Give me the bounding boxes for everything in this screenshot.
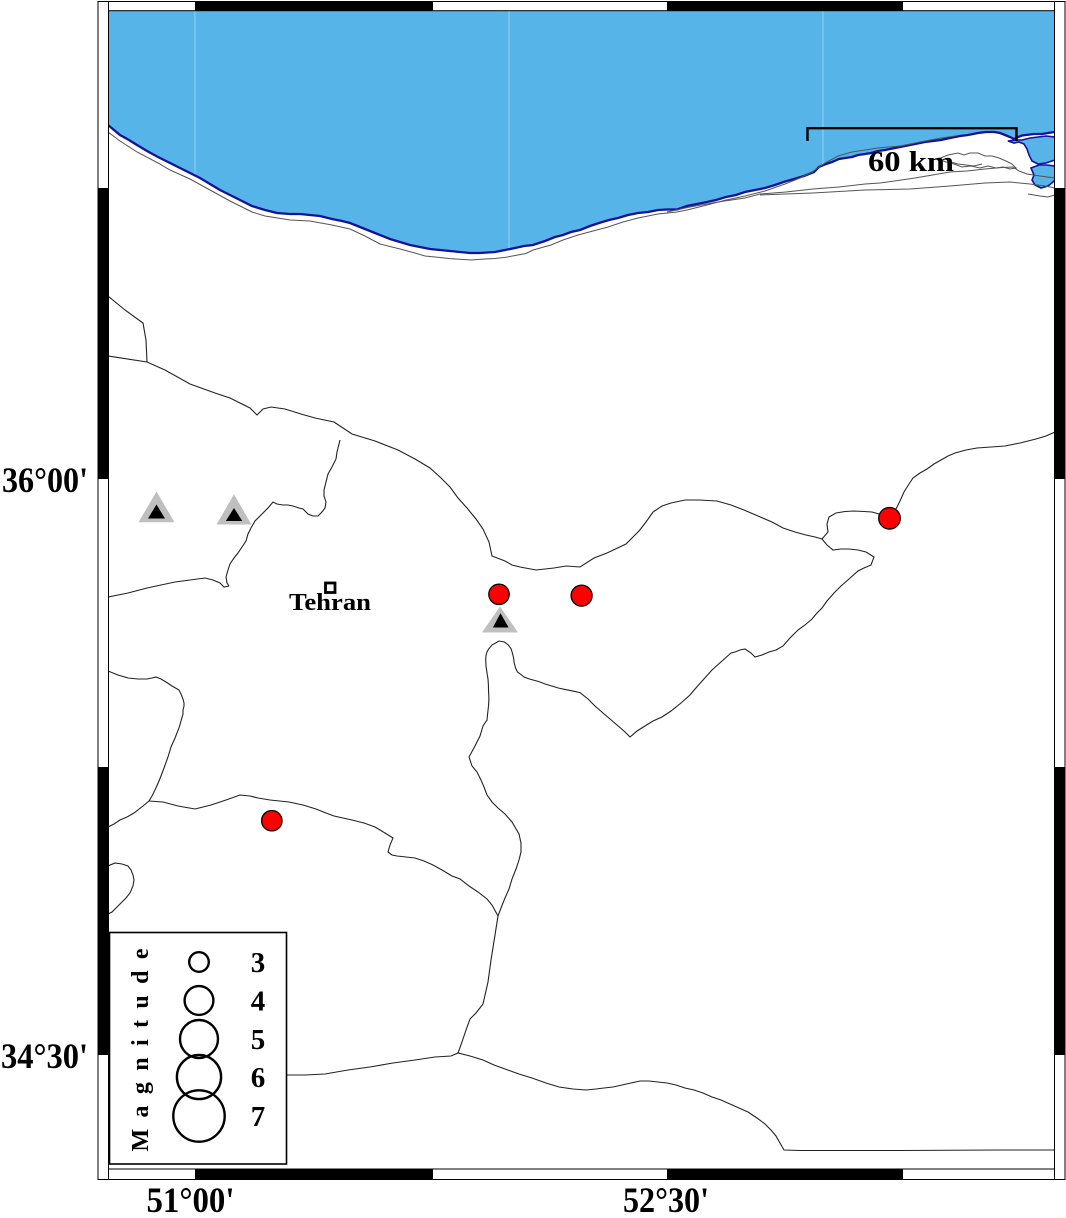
svg-text:52°30': 52°30' bbox=[623, 1180, 709, 1218]
svg-text:6: 6 bbox=[251, 1062, 266, 1094]
svg-text:60 km: 60 km bbox=[868, 146, 954, 178]
svg-text:3: 3 bbox=[251, 947, 266, 979]
svg-text:5: 5 bbox=[251, 1024, 266, 1056]
svg-text:7: 7 bbox=[251, 1101, 266, 1133]
svg-text:Tehran: Tehran bbox=[289, 590, 371, 616]
svg-text:34°30': 34°30' bbox=[1, 1036, 88, 1076]
svg-text:4: 4 bbox=[251, 986, 266, 1018]
svg-text:51°00': 51°00' bbox=[147, 1180, 235, 1218]
svg-text:36°00': 36°00' bbox=[2, 460, 88, 500]
